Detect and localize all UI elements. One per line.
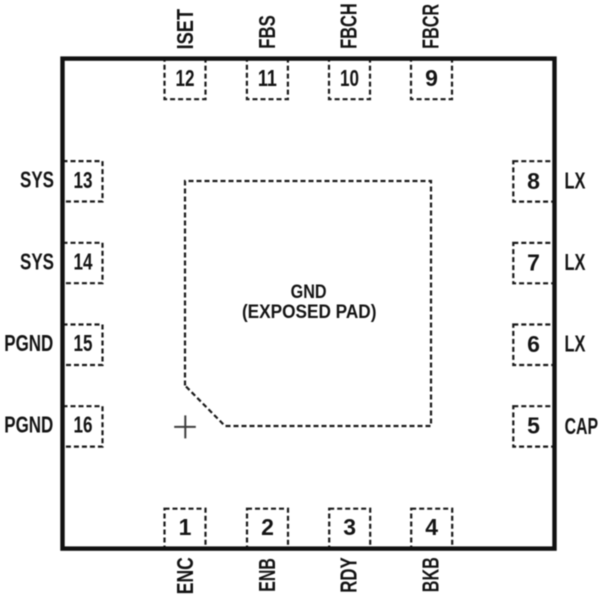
svg-text:12: 12 bbox=[176, 65, 195, 91]
svg-text:1: 1 bbox=[179, 514, 192, 540]
svg-text:FBCH: FBCH bbox=[336, 3, 362, 49]
svg-text:3: 3 bbox=[343, 514, 356, 540]
svg-text:SYS: SYS bbox=[20, 248, 54, 274]
svg-text:7: 7 bbox=[527, 250, 540, 276]
svg-text:15: 15 bbox=[74, 330, 93, 356]
svg-text:8: 8 bbox=[527, 168, 540, 194]
svg-text:PGND: PGND bbox=[4, 330, 53, 356]
svg-text:14: 14 bbox=[74, 249, 93, 275]
svg-text:SYS: SYS bbox=[20, 167, 54, 193]
svg-text:FBCR: FBCR bbox=[418, 4, 444, 49]
svg-text:BKB: BKB bbox=[418, 557, 444, 592]
svg-text:CAP: CAP bbox=[565, 413, 599, 439]
svg-text:6: 6 bbox=[527, 331, 540, 357]
svg-text:9: 9 bbox=[425, 65, 438, 91]
svg-text:11: 11 bbox=[258, 65, 277, 91]
svg-text:LX: LX bbox=[565, 249, 586, 275]
svg-text:2: 2 bbox=[261, 514, 274, 540]
svg-text:FBS: FBS bbox=[254, 15, 280, 49]
svg-text:ENB: ENB bbox=[254, 558, 280, 592]
svg-text:LX: LX bbox=[565, 167, 586, 193]
svg-text:16: 16 bbox=[74, 412, 93, 438]
svg-text:PGND: PGND bbox=[4, 412, 53, 438]
svg-text:13: 13 bbox=[74, 167, 93, 193]
svg-text:5: 5 bbox=[527, 413, 540, 439]
svg-text:RDY: RDY bbox=[336, 557, 362, 593]
svg-text:10: 10 bbox=[340, 65, 359, 91]
svg-text:4: 4 bbox=[425, 514, 438, 540]
svg-text:(EXPOSED PAD): (EXPOSED PAD) bbox=[242, 302, 377, 323]
svg-text:ENC: ENC bbox=[172, 557, 198, 594]
svg-text:ISET: ISET bbox=[172, 9, 198, 50]
svg-text:GND: GND bbox=[291, 282, 327, 303]
svg-text:LX: LX bbox=[565, 331, 586, 357]
